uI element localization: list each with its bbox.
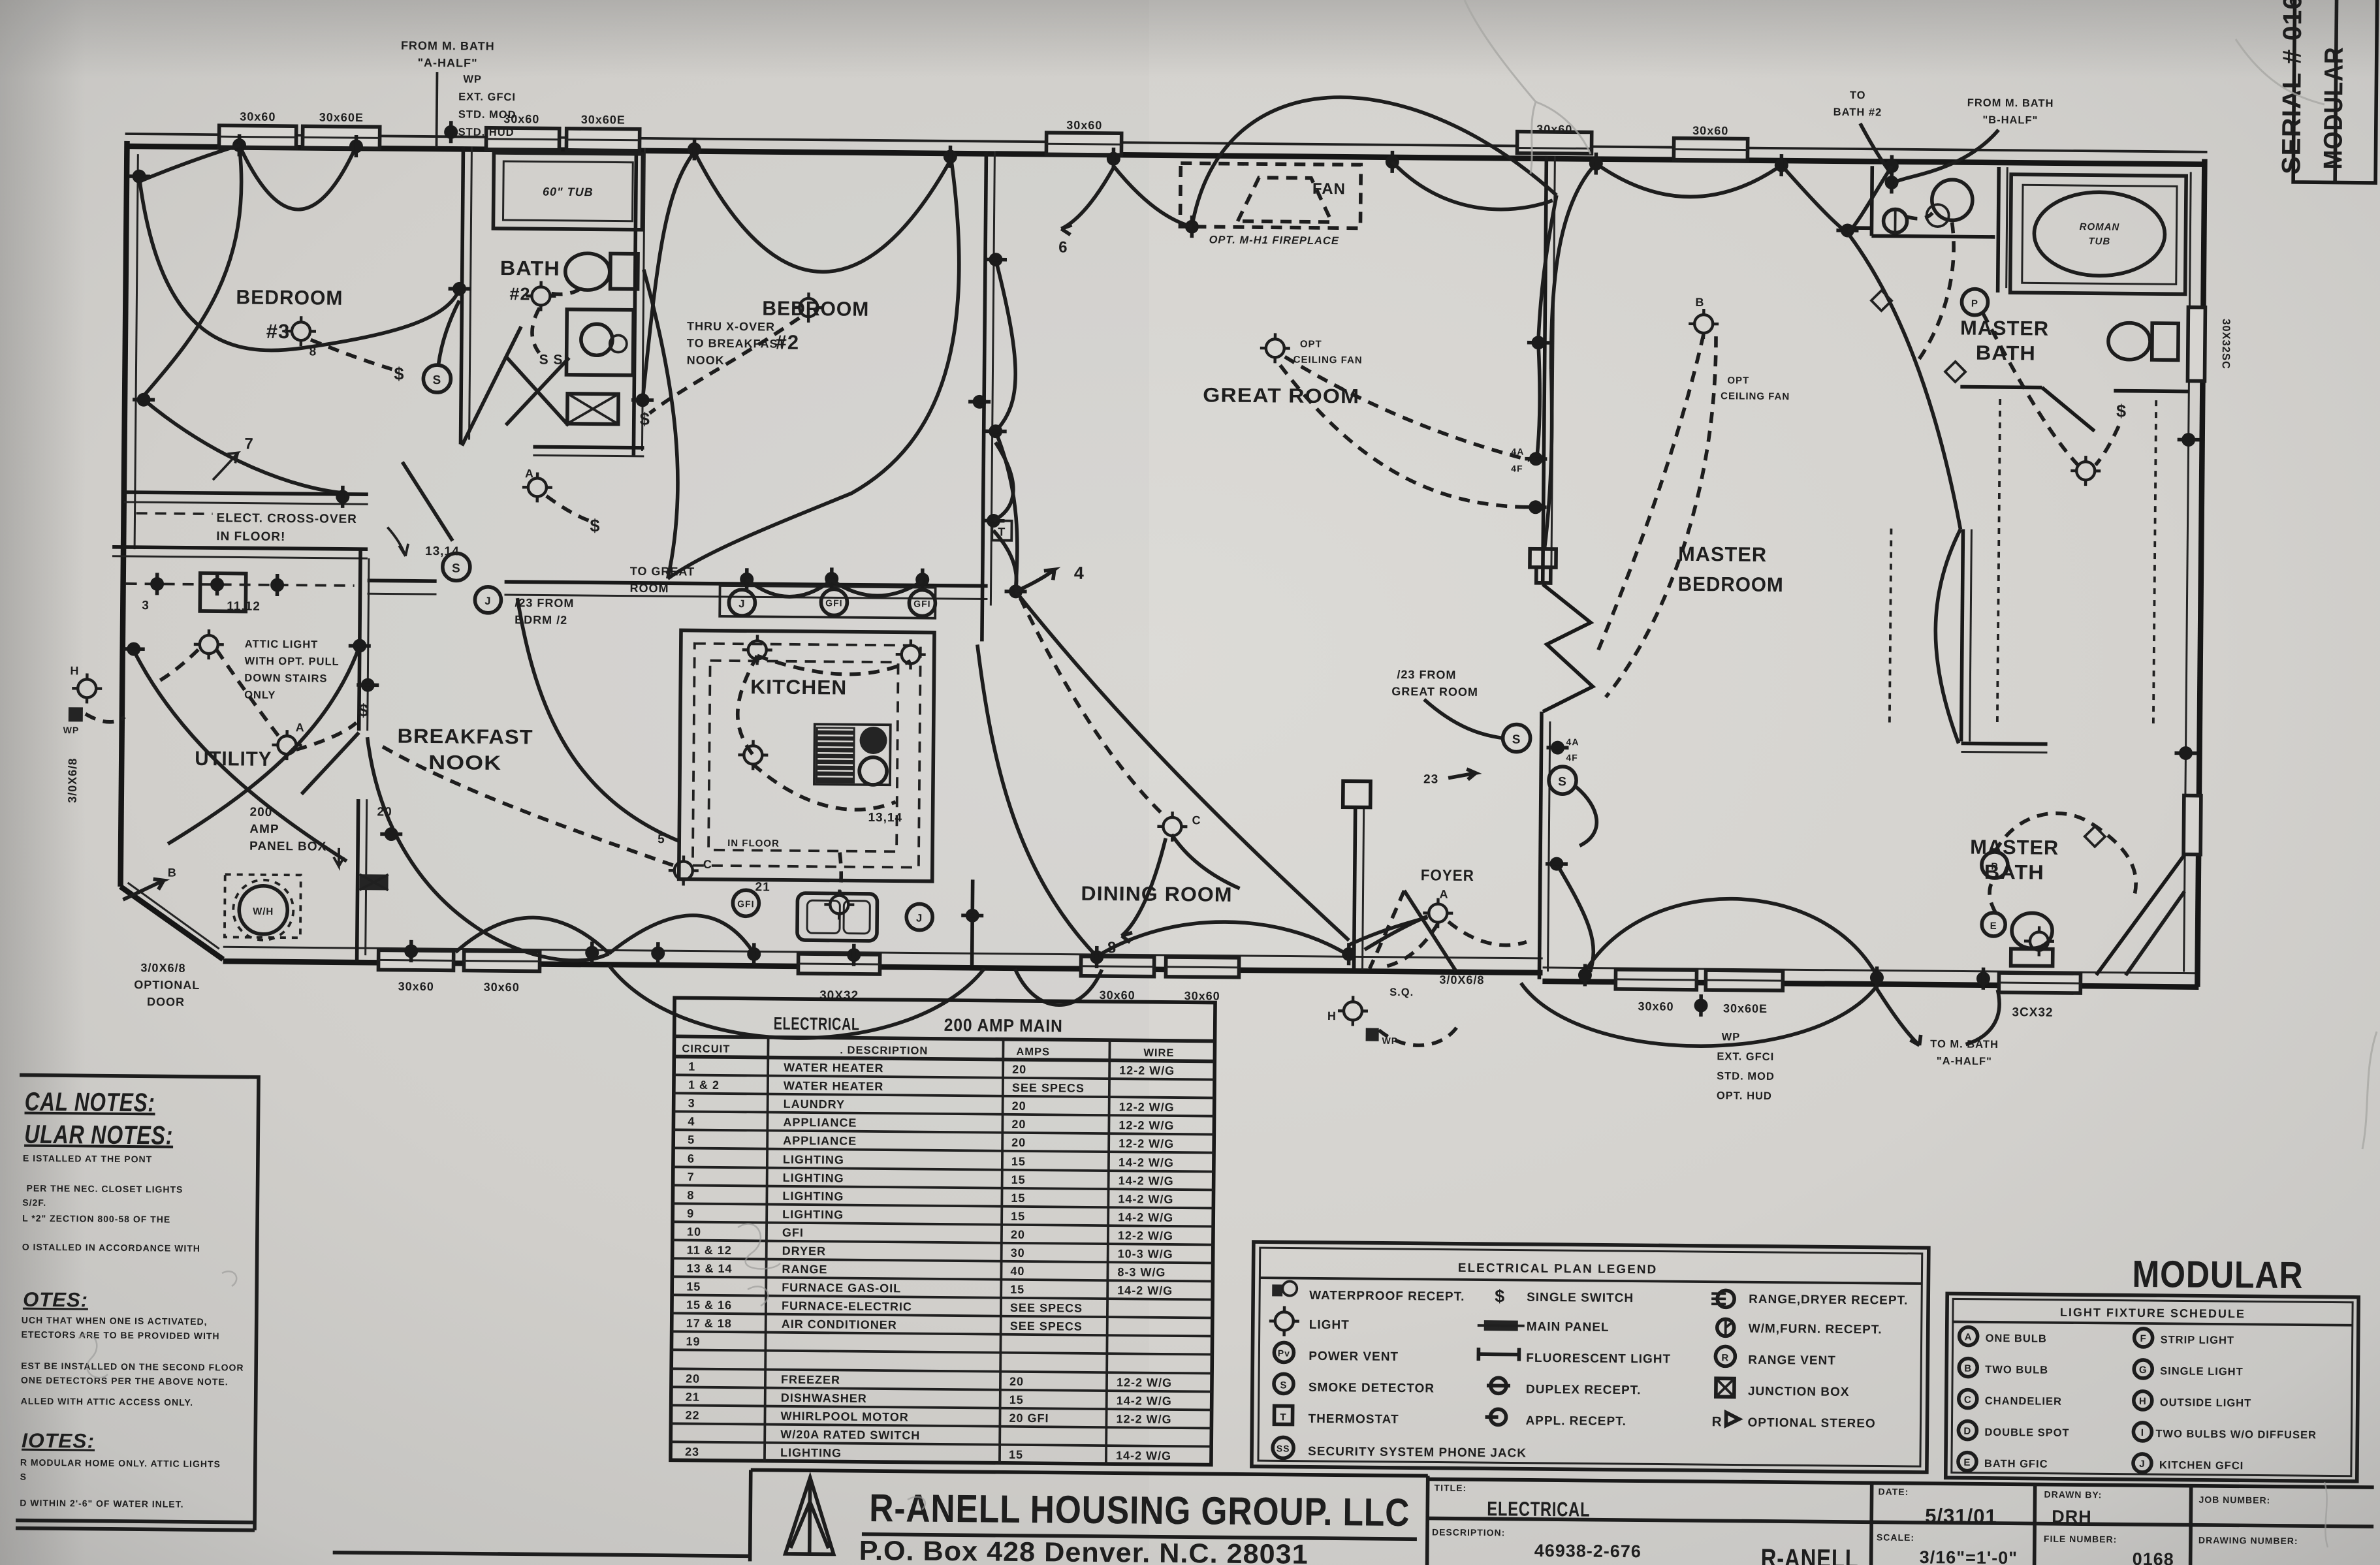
svg-text:DOOR: DOOR [147, 995, 185, 1009]
svg-text:MASTER: MASTER [1678, 543, 1767, 566]
svg-text:15: 15 [686, 1280, 701, 1293]
svg-text:WATERPROOF RECEPT.: WATERPROOF RECEPT. [1309, 1289, 1465, 1304]
svg-text:22: 22 [685, 1408, 699, 1421]
svg-text:11,12: 11,12 [227, 599, 261, 613]
svg-text:"B-HALF": "B-HALF" [1982, 114, 2038, 127]
svg-text:GFI: GFI [737, 898, 754, 909]
svg-text:MODULAR: MODULAR [2132, 1253, 2304, 1297]
svg-text:GREAT ROOM: GREAT ROOM [1391, 685, 1478, 699]
svg-text:S S: S S [539, 352, 563, 367]
svg-text:14-2 W/G: 14-2 W/G [1117, 1394, 1172, 1408]
svg-text:S/2F.: S/2F. [22, 1197, 46, 1208]
svg-text:ATTIC LIGHT: ATTIC LIGHT [245, 639, 319, 651]
svg-text:ELECTRICAL: ELECTRICAL [1487, 1497, 1590, 1521]
svg-text:OTES:: OTES: [23, 1288, 88, 1312]
svg-text:4A: 4A [1511, 446, 1524, 456]
svg-text:LIGHTING: LIGHTING [782, 1190, 844, 1203]
svg-text:$: $ [1495, 1286, 1505, 1306]
svg-text:F: F [2140, 1333, 2146, 1344]
svg-text:DATE:: DATE: [1879, 1486, 1909, 1496]
svg-text:$: $ [394, 364, 404, 384]
svg-text:EXT. GFCI: EXT. GFCI [458, 91, 516, 103]
svg-text:FURNACE-ELECTRIC: FURNACE-ELECTRIC [782, 1299, 912, 1314]
svg-text:TWO BULB: TWO BULB [1985, 1364, 2048, 1376]
svg-text:S: S [1512, 733, 1521, 746]
svg-text:FURNACE GAS-OIL: FURNACE GAS-OIL [782, 1281, 901, 1295]
svg-text:1: 1 [688, 1060, 695, 1073]
svg-text:BEDROOM: BEDROOM [1678, 573, 1784, 596]
svg-text:30x60: 30x60 [1692, 124, 1728, 137]
svg-text:30x60: 30x60 [484, 981, 520, 994]
svg-text:APPLIANCE: APPLIANCE [783, 1116, 857, 1130]
svg-text:MODULAR: MODULAR [2319, 46, 2349, 169]
svg-text:60" TUB: 60" TUB [543, 185, 594, 199]
svg-text:CHANDELIER: CHANDELIER [1985, 1395, 2062, 1408]
svg-text:S: S [452, 561, 461, 575]
svg-text:1 & 2: 1 & 2 [688, 1079, 720, 1092]
svg-text:ALLED WITH ATTIC ACCESS ONLY.: ALLED WITH ATTIC ACCESS ONLY. [21, 1396, 194, 1408]
svg-text:THRU X-OVER: THRU X-OVER [687, 319, 775, 333]
svg-text:A: A [1965, 1332, 1973, 1343]
svg-text:WIRE: WIRE [1143, 1047, 1174, 1059]
svg-text:30x60: 30x60 [240, 110, 276, 123]
svg-text:FILE NUMBER:: FILE NUMBER: [2044, 1534, 2117, 1545]
svg-text:15: 15 [1011, 1173, 1026, 1186]
svg-text:D WITHIN 2'-6" OF WATER INLET.: D WITHIN 2'-6" OF WATER INLET. [20, 1498, 183, 1510]
svg-text:5: 5 [688, 1133, 695, 1146]
svg-text:THERMOSTAT: THERMOSTAT [1308, 1412, 1399, 1427]
svg-text:O ISTALLED IN ACCORDANCE WITH: O ISTALLED IN ACCORDANCE WITH [22, 1242, 200, 1254]
svg-text:I: I [2141, 1427, 2144, 1438]
svg-text:LIGHTING: LIGHTING [782, 1208, 844, 1222]
svg-text:PER THE NEC. CLOSET LIGHTS: PER THE NEC. CLOSET LIGHTS [26, 1183, 183, 1195]
svg-text:OPT: OPT [1300, 339, 1322, 350]
svg-text:$: $ [590, 516, 600, 535]
svg-text:4: 4 [688, 1115, 695, 1128]
svg-text:H: H [2139, 1396, 2147, 1407]
svg-text:R: R [1721, 1352, 1729, 1363]
svg-text:14-2 W/G: 14-2 W/G [1119, 1174, 1174, 1188]
svg-text:DRH: DRH [2052, 1507, 2092, 1527]
svg-text:DRYER: DRYER [782, 1244, 827, 1258]
svg-text:DISHWASHER: DISHWASHER [781, 1391, 867, 1405]
svg-text:R MODULAR HOME ONLY. ATTIC LIG: R MODULAR HOME ONLY. ATTIC LIGHTS [20, 1457, 221, 1470]
svg-text:SS: SS [1277, 1443, 1290, 1453]
svg-text:30x60: 30x60 [1536, 123, 1572, 136]
svg-text:WATER HEATER: WATER HEATER [784, 1061, 883, 1075]
svg-text:RANGE VENT: RANGE VENT [1748, 1353, 1836, 1368]
svg-text:20: 20 [377, 805, 392, 819]
svg-text:E ISTALLED AT THE PONT: E ISTALLED AT THE PONT [23, 1153, 152, 1165]
svg-text:30: 30 [1011, 1246, 1025, 1259]
svg-text:. DESCRIPTION: . DESCRIPTION [840, 1045, 928, 1057]
svg-text:BATH: BATH [500, 257, 560, 280]
svg-text:AMPS: AMPS [1016, 1046, 1050, 1058]
svg-text:15: 15 [1011, 1155, 1026, 1168]
svg-text:6: 6 [1058, 238, 1068, 256]
svg-text:20: 20 [686, 1372, 700, 1385]
svg-text:4F: 4F [1511, 463, 1523, 473]
svg-text:4: 4 [1074, 563, 1085, 583]
svg-text:KITCHEN GFCI: KITCHEN GFCI [2159, 1459, 2244, 1472]
svg-text:P.O. Box 428 Denver. N.C. 2803: P.O. Box 428 Denver. N.C. 28031 [859, 1535, 1309, 1565]
svg-text:FLUORESCENT LIGHT: FLUORESCENT LIGHT [1526, 1352, 1671, 1367]
svg-text:STD. HUD: STD. HUD [458, 126, 515, 138]
svg-text:TO M. BATH: TO M. BATH [1930, 1038, 1999, 1051]
svg-text:14-2 W/G: 14-2 W/G [1118, 1192, 1173, 1206]
svg-text:15: 15 [1009, 1393, 1024, 1406]
svg-text:J: J [916, 913, 923, 925]
svg-text:R-ANELL: R-ANELL [1760, 1544, 1858, 1565]
svg-text:A: A [296, 721, 305, 734]
svg-text:15: 15 [1011, 1210, 1025, 1223]
svg-text:FAN: FAN [1312, 180, 1346, 198]
svg-text:20 GFI: 20 GFI [1009, 1412, 1049, 1425]
svg-text:ELECTRICAL: ELECTRICAL [774, 1014, 860, 1034]
svg-text:15: 15 [1011, 1192, 1025, 1205]
svg-text:4A: 4A [1566, 736, 1579, 747]
svg-text:$: $ [2116, 402, 2127, 421]
svg-text:APPL. RECEPT.: APPL. RECEPT. [1525, 1414, 1626, 1429]
svg-text:12-2 W/G: 12-2 W/G [1119, 1100, 1175, 1114]
svg-text:200 AMP MAIN: 200 AMP MAIN [944, 1015, 1063, 1036]
svg-text:8-3 W/G: 8-3 W/G [1117, 1265, 1166, 1279]
svg-text:A: A [1439, 888, 1448, 901]
svg-text:GFI: GFI [913, 598, 930, 609]
svg-text:30x60E: 30x60E [581, 113, 626, 127]
svg-text:OUTSIDE LIGHT: OUTSIDE LIGHT [2160, 1397, 2252, 1409]
svg-text:40: 40 [1010, 1265, 1024, 1278]
svg-text:IN FLOOR: IN FLOOR [727, 838, 780, 849]
svg-text:ELECT. CROSS-OVER: ELECT. CROSS-OVER [216, 511, 357, 526]
svg-text:FROM M. BATH: FROM M. BATH [401, 39, 495, 53]
svg-text:B: B [1964, 1363, 1972, 1374]
svg-text:30X32SC: 30X32SC [2220, 319, 2232, 370]
svg-text:LIGHT: LIGHT [1309, 1318, 1350, 1333]
svg-text:W/M,FURN. RECEPT.: W/M,FURN. RECEPT. [1749, 1322, 1882, 1337]
svg-text:10-3 W/G: 10-3 W/G [1118, 1247, 1173, 1261]
svg-text:15: 15 [1010, 1283, 1024, 1296]
svg-text:IOTES:: IOTES: [22, 1429, 95, 1453]
svg-text:S: S [432, 373, 441, 387]
svg-text:B: B [1695, 296, 1704, 309]
svg-text:WP: WP [1722, 1031, 1741, 1043]
svg-text:9: 9 [687, 1207, 694, 1220]
svg-text:WP: WP [63, 725, 80, 735]
svg-text:R: R [1711, 1414, 1722, 1429]
svg-text:EXT. GFCI: EXT. GFCI [1717, 1051, 1774, 1063]
svg-text:3/0X6/8: 3/0X6/8 [140, 961, 185, 975]
svg-text:SMOKE DETECTOR: SMOKE DETECTOR [1309, 1381, 1435, 1396]
svg-text:23: 23 [1423, 772, 1438, 786]
svg-text:E: E [1963, 1457, 1971, 1468]
svg-text:ROMAN: ROMAN [2080, 221, 2120, 233]
svg-text:C: C [703, 858, 712, 871]
svg-text:14-2 W/G: 14-2 W/G [1119, 1156, 1174, 1169]
svg-text:LAUNDRY: LAUNDRY [784, 1098, 845, 1111]
svg-text:B: B [168, 866, 177, 879]
svg-text:14-2 W/G: 14-2 W/G [1116, 1449, 1171, 1462]
svg-text:20: 20 [1012, 1099, 1026, 1113]
svg-text:SINGLE SWITCH: SINGLE SWITCH [1527, 1291, 1634, 1305]
svg-text:OPTIONAL STEREO: OPTIONAL STEREO [1747, 1416, 1875, 1431]
svg-text:EST BE INSTALLED ON THE SECOND: EST BE INSTALLED ON THE SECOND FLOOR [21, 1361, 244, 1373]
svg-text:S: S [1558, 775, 1567, 789]
svg-text:STD. MOD: STD. MOD [1717, 1070, 1775, 1083]
svg-text:LIGHTING: LIGHTING [783, 1171, 844, 1185]
svg-text:W/20A RATED SWITCH: W/20A RATED SWITCH [780, 1428, 920, 1442]
svg-text:LIGHT FIXTURE SCHEDULE: LIGHT FIXTURE SCHEDULE [2060, 1306, 2245, 1320]
svg-text:TO BREAKFAST: TO BREAKFAST [687, 336, 786, 350]
svg-text:19: 19 [686, 1335, 700, 1348]
svg-text:13,14: 13,14 [868, 811, 902, 825]
svg-text:14-2 W/G: 14-2 W/G [1117, 1284, 1173, 1297]
svg-text:0168: 0168 [2133, 1549, 2174, 1565]
svg-text:S.Q.: S.Q. [1389, 987, 1414, 998]
svg-text:20: 20 [1011, 1228, 1025, 1241]
svg-text:FREEZER: FREEZER [781, 1373, 840, 1387]
svg-text:15: 15 [1009, 1448, 1023, 1461]
svg-text:6: 6 [688, 1152, 695, 1165]
svg-text:5/31/01: 5/31/01 [1925, 1504, 1997, 1528]
svg-text:R-ANELL HOUSING GROUP. LLC: R-ANELL HOUSING GROUP. LLC [869, 1486, 1410, 1534]
svg-text:12-2 W/G: 12-2 W/G [1119, 1118, 1174, 1132]
svg-text:GFI: GFI [782, 1226, 804, 1239]
svg-text:WITH OPT. PULL: WITH OPT. PULL [245, 656, 340, 668]
svg-text:BATH #2: BATH #2 [1833, 106, 1882, 119]
svg-text:J: J [2139, 1459, 2145, 1470]
svg-text:J: J [738, 598, 745, 610]
svg-text:OPT. HUD: OPT. HUD [1717, 1090, 1772, 1102]
svg-text:DOUBLE SPOT: DOUBLE SPOT [1984, 1427, 2069, 1439]
svg-text:RANGE,DRYER RECEPT.: RANGE,DRYER RECEPT. [1749, 1293, 1908, 1308]
svg-text:W/H: W/H [253, 906, 274, 917]
svg-text:MAIN PANEL: MAIN PANEL [1527, 1320, 1610, 1335]
svg-text:OPT. M-H1 FIREPLACE: OPT. M-H1 FIREPLACE [1209, 234, 1339, 247]
svg-text:C: C [1964, 1395, 1972, 1406]
svg-text:20: 20 [1011, 1136, 1026, 1149]
svg-text:S: S [20, 1472, 27, 1482]
svg-text:POWER VENT: POWER VENT [1309, 1350, 1399, 1364]
svg-text:STD. MOD: STD. MOD [458, 108, 516, 121]
svg-text:STRIP LIGHT: STRIP LIGHT [2161, 1334, 2235, 1346]
svg-text:12-2 W/G: 12-2 W/G [1119, 1064, 1175, 1077]
svg-text:AIR CONDITIONER: AIR CONDITIONER [782, 1318, 897, 1332]
svg-text:SEE SPECS: SEE SPECS [1012, 1081, 1085, 1095]
svg-text:NOOK: NOOK [687, 353, 725, 367]
svg-text:LIGHTING: LIGHTING [780, 1446, 842, 1460]
svg-text:CEILING FAN: CEILING FAN [1721, 390, 1790, 402]
svg-text:GFI: GFI [825, 597, 842, 608]
svg-text:46938-2-676: 46938-2-676 [1534, 1541, 1642, 1561]
svg-text:CEILING FAN: CEILING FAN [1293, 355, 1363, 366]
svg-text:21: 21 [686, 1390, 700, 1403]
svg-text:WHIRLPOOL MOTOR: WHIRLPOOL MOTOR [780, 1410, 908, 1424]
svg-text:$: $ [358, 701, 369, 720]
svg-text:ELECTRICAL PLAN LEGEND: ELECTRICAL PLAN LEGEND [1458, 1261, 1658, 1277]
svg-text:13,14: 13,14 [425, 545, 460, 558]
svg-text:MASTER: MASTER [1960, 316, 2049, 340]
svg-text:JUNCTION BOX: JUNCTION BOX [1748, 1385, 1850, 1399]
svg-text:G: G [2139, 1365, 2148, 1376]
svg-text:C: C [1192, 814, 1201, 827]
svg-text:/23 FROM: /23 FROM [515, 596, 574, 610]
svg-text:J: J [484, 595, 491, 607]
svg-text:H: H [1327, 1009, 1337, 1022]
svg-text:3/0X6/8: 3/0X6/8 [1439, 973, 1484, 987]
svg-text:D: D [1963, 1426, 1971, 1437]
svg-text:H: H [70, 664, 79, 677]
svg-text:P: P [1991, 861, 1998, 872]
svg-text:T: T [1280, 1412, 1286, 1423]
svg-text:12-2 W/G: 12-2 W/G [1116, 1412, 1171, 1426]
svg-text:SINGLE LIGHT: SINGLE LIGHT [2160, 1365, 2244, 1378]
svg-text:DESCRIPTION:: DESCRIPTION: [1432, 1526, 1505, 1538]
svg-text:OPT: OPT [1727, 375, 1749, 386]
svg-text:TITLE:: TITLE: [1435, 1483, 1467, 1493]
svg-text:JOB NUMBER:: JOB NUMBER: [2198, 1494, 2270, 1506]
svg-text:ROOM: ROOM [629, 582, 669, 595]
svg-text:BEDROOM: BEDROOM [236, 285, 343, 309]
svg-text:A: A [525, 467, 534, 480]
svg-text:ONE BULB: ONE BULB [1986, 1333, 2047, 1345]
svg-text:3/0X6/8: 3/0X6/8 [66, 758, 80, 803]
svg-text:30x60: 30x60 [1066, 119, 1102, 132]
svg-text:TUB: TUB [2088, 236, 2110, 247]
svg-text:ONLY: ONLY [244, 689, 276, 701]
svg-text:FOYER: FOYER [1421, 866, 1474, 885]
svg-text:10: 10 [687, 1225, 701, 1238]
svg-text:AMP: AMP [249, 823, 279, 836]
svg-text:3CX32: 3CX32 [2012, 1005, 2053, 1020]
svg-text:12-2 W/G: 12-2 W/G [1119, 1137, 1174, 1150]
svg-text:8: 8 [687, 1189, 694, 1202]
svg-text:TO: TO [1850, 89, 1866, 101]
svg-text:L *2" ZECTION 800-58 OF THE: L *2" ZECTION 800-58 OF THE [22, 1213, 170, 1225]
svg-text:FROM M. BATH: FROM M. BATH [1967, 97, 2054, 110]
svg-text:20: 20 [1012, 1063, 1026, 1076]
svg-text:$: $ [640, 409, 650, 429]
svg-text:12-2 W/G: 12-2 W/G [1118, 1229, 1173, 1242]
svg-text:ONE DETECTORS PER THE ABOVE NO: ONE DETECTORS PER THE ABOVE NOTE. [21, 1375, 229, 1387]
svg-text:/23 FROM: /23 FROM [1397, 668, 1456, 682]
svg-text:CIRCUIT: CIRCUIT [682, 1043, 730, 1055]
svg-text:BREAKFAST: BREAKFAST [397, 725, 533, 749]
svg-text:12-2 W/G: 12-2 W/G [1117, 1376, 1172, 1389]
svg-text:TWO BULBS W/O DIFFUSER: TWO BULBS W/O DIFFUSER [2155, 1428, 2317, 1441]
svg-text:11 & 12: 11 & 12 [687, 1243, 732, 1257]
svg-text:DINING ROOM: DINING ROOM [1081, 882, 1232, 906]
svg-text:WP: WP [463, 73, 482, 85]
svg-text:SEE SPECS: SEE SPECS [1010, 1301, 1083, 1315]
svg-text:ULAR NOTES:: ULAR NOTES: [24, 1120, 173, 1150]
svg-text:P: P [1971, 298, 1978, 309]
svg-text:8: 8 [309, 345, 317, 358]
svg-text:NOOK: NOOK [428, 751, 501, 774]
svg-text:ETECTORS ARE TO BE PROVIDED WI: ETECTORS ARE TO BE PROVIDED WITH [22, 1329, 220, 1342]
svg-text:14-2 W/G: 14-2 W/G [1118, 1210, 1173, 1224]
svg-text:S: S [1280, 1380, 1287, 1391]
svg-text:RANGE: RANGE [782, 1263, 827, 1276]
svg-text:DRAWN BY:: DRAWN BY: [2044, 1489, 2102, 1500]
svg-text:7: 7 [688, 1171, 695, 1184]
svg-text:DRAWING NUMBER:: DRAWING NUMBER: [2198, 1535, 2298, 1546]
svg-text:15 & 16: 15 & 16 [686, 1298, 732, 1312]
svg-text:20: 20 [1011, 1118, 1026, 1131]
svg-text:KITCHEN: KITCHEN [750, 675, 847, 699]
svg-text:SEE SPECS: SEE SPECS [1010, 1320, 1083, 1333]
svg-text:23: 23 [685, 1445, 699, 1458]
svg-text:"A-HALF": "A-HALF" [417, 56, 477, 70]
svg-text:OPTIONAL: OPTIONAL [134, 978, 200, 992]
svg-text:13 & 14: 13 & 14 [686, 1261, 732, 1275]
svg-text:30x60E: 30x60E [1723, 1002, 1768, 1015]
svg-text:7: 7 [244, 435, 254, 453]
svg-text:3: 3 [688, 1097, 695, 1110]
svg-text:21: 21 [755, 880, 770, 894]
svg-text:UCH THAT WHEN ONE IS ACTIVATED: UCH THAT WHEN ONE IS ACTIVATED, [22, 1315, 208, 1327]
svg-text:3/16"=1'-0": 3/16"=1'-0" [1920, 1547, 2018, 1565]
svg-text:DUPLEX RECEPT.: DUPLEX RECEPT. [1526, 1383, 1642, 1398]
svg-text:30x60: 30x60 [398, 980, 434, 993]
svg-text:DOWN STAIRS: DOWN STAIRS [244, 672, 327, 685]
svg-text:SCALE:: SCALE: [1877, 1532, 1914, 1543]
svg-text:WATER HEATER: WATER HEATER [784, 1079, 883, 1093]
svg-text:20: 20 [1009, 1375, 1024, 1388]
svg-text:3: 3 [142, 599, 150, 612]
svg-text:"A-HALF": "A-HALF" [1937, 1055, 1992, 1067]
svg-text:17 & 18: 17 & 18 [686, 1316, 732, 1330]
svg-text:Pv: Pv [1278, 1348, 1290, 1358]
svg-text:SECURITY SYSTEM PHONE JACK: SECURITY SYSTEM PHONE JACK [1308, 1445, 1527, 1461]
svg-text:E: E [1990, 921, 1997, 932]
svg-text:APPLIANCE: APPLIANCE [783, 1134, 857, 1148]
svg-text:30x60E: 30x60E [319, 111, 364, 125]
svg-text:4F: 4F [1566, 752, 1578, 763]
svg-text:CAL NOTES:: CAL NOTES: [24, 1088, 155, 1118]
svg-text:30x60: 30x60 [1638, 1000, 1674, 1013]
svg-text:IN FLOOR!: IN FLOOR! [216, 530, 285, 544]
svg-text:LIGHTING: LIGHTING [783, 1153, 844, 1167]
svg-text:#2: #2 [509, 284, 530, 304]
svg-text:BATH GFIC: BATH GFIC [1984, 1458, 2048, 1470]
